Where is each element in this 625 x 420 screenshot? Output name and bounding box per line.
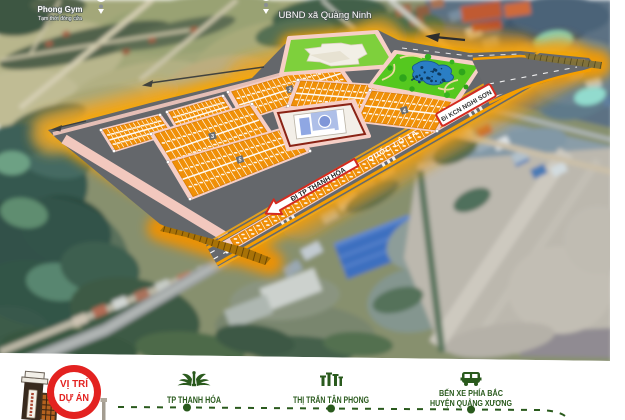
svg-text:Phong Gym: Phong Gym (38, 5, 83, 14)
svg-text:DỰ ÁN: DỰ ÁN (59, 391, 89, 404)
svg-text:5: 5 (238, 158, 241, 164)
svg-text:BẾN XE PHÍA BẮC: BẾN XE PHÍA BẮC (439, 388, 503, 398)
svg-text:VỊ TRÍ: VỊ TRÍ (60, 377, 88, 390)
svg-text:3: 3 (211, 134, 214, 140)
svg-text:Tạm thời đóng cửa: Tạm thời đóng cửa (38, 15, 82, 22)
svg-text:TP THANH HÓA: TP THANH HÓA (167, 394, 221, 405)
svg-text:HUYỆN QUẢNG XƯƠNG: HUYỆN QUẢNG XƯƠNG (430, 397, 512, 408)
svg-text:UBND xã Quảng Ninh: UBND xã Quảng Ninh (279, 10, 372, 21)
svg-text:THỊ TRẤN TÂN PHONG: THỊ TRẤN TÂN PHONG (293, 394, 369, 405)
svg-text:2: 2 (288, 87, 291, 93)
